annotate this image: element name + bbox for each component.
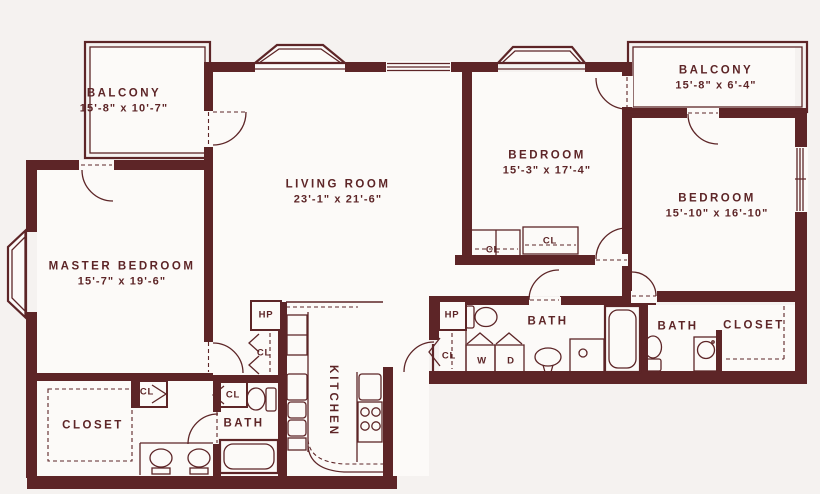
room-label-master-bedroom: MASTER BEDROOM [49, 261, 196, 273]
room-label-closet-left: CLOSET [62, 420, 124, 432]
room-label-bath-middle: BATH [527, 316, 568, 328]
room-label-bedroom-middle: BEDROOM [508, 150, 586, 162]
floor-plan: BALCONY 15'-8" x 10'-7" BALCONY 15'-8" x… [0, 0, 820, 494]
label-hp-hall-kitchen: HP [259, 310, 274, 320]
label-cl-bath-middle: CL [442, 351, 456, 361]
label-cl-bedroom-closet-l: CL [486, 245, 500, 255]
label-cl-hall-kitchen: CL [257, 348, 271, 358]
room-dims-bedroom-right: 15'-10" x 16'-10" [666, 209, 769, 220]
room-dims-balcony-left: 15'-8" x 10'-7" [80, 104, 168, 115]
room-dims-balcony-right: 15'-8" x 6'-4" [675, 81, 756, 92]
window-living-room [386, 61, 451, 73]
window-bedroom-right [794, 147, 808, 212]
room-label-closet-right: CLOSET [723, 320, 785, 332]
label-cl-corridor-cell-1: CL [140, 387, 154, 397]
bay-window-bedroom [498, 47, 585, 69]
room-label-balcony-right: BALCONY [679, 65, 753, 77]
room-label-living-room: LIVING ROOM [286, 179, 391, 191]
room-label-bath-right: BATH [657, 321, 698, 333]
room-label-kitchen: KITCHEN [326, 365, 338, 437]
room-label-balcony-left: BALCONY [87, 88, 161, 100]
room-dims-master-bedroom: 15'-7" x 19'-6" [78, 277, 166, 288]
label-dryer: D [507, 356, 515, 366]
room-dims-living-room: 23'-1" x 21'-6" [294, 195, 382, 206]
room-label-bedroom-right: BEDROOM [678, 193, 756, 205]
bay-window-master [8, 230, 26, 318]
label-cl-corridor-cell-2: CL [226, 390, 240, 400]
label-washer: W [477, 356, 487, 366]
label-cl-bedroom-closet-r: CL [543, 236, 557, 246]
room-label-bath-left: BATH [223, 418, 264, 430]
room-dims-bedroom-middle: 15'-3" x 17'-4" [503, 166, 591, 177]
label-hp-bath-middle: HP [445, 310, 460, 320]
